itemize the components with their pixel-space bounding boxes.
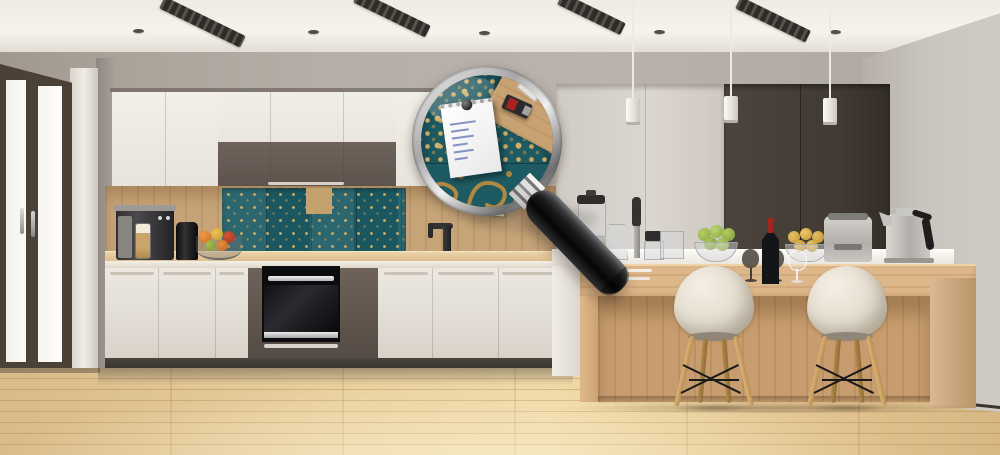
pendant-light	[724, 96, 738, 123]
black-canister	[176, 222, 198, 260]
pendant-cord	[632, 0, 634, 100]
oven-drawer-handle	[264, 344, 338, 348]
base-cabinet-white-left	[105, 268, 248, 360]
bar-right-leg	[930, 278, 976, 408]
window-handle	[20, 208, 24, 234]
faucet-spout-tip	[428, 223, 433, 238]
pendant-light	[626, 98, 640, 125]
oven-handle	[268, 276, 334, 281]
latte-glass	[136, 224, 150, 258]
note-scribble	[454, 149, 474, 154]
door-handle	[163, 272, 211, 275]
usb-label	[506, 97, 519, 111]
window-pane	[38, 86, 62, 362]
toaster-panel	[834, 244, 862, 250]
note-scribble	[451, 128, 469, 132]
machine-light	[158, 216, 162, 220]
yellow-fruit	[800, 228, 812, 240]
oven-door-glass	[264, 285, 338, 332]
door-handle	[110, 272, 154, 275]
base-cabinet-white-right	[378, 268, 560, 360]
cabinet-door-seam	[498, 268, 499, 360]
yellow-fruit	[211, 228, 223, 240]
note-scribble	[453, 143, 468, 147]
machine-light	[166, 216, 170, 220]
recessed-light-icon	[133, 29, 144, 33]
floor-shadow-under-cabinets	[98, 368, 573, 385]
chair-strut	[822, 379, 872, 381]
green-fruit	[205, 240, 216, 251]
upper-cabinet-two-tone	[218, 92, 396, 189]
bar-left-stile	[580, 296, 598, 402]
cabinet-door-seam	[343, 92, 344, 189]
pendant-light	[823, 98, 837, 125]
stick-blender-handle	[632, 197, 641, 227]
beige-tile-patch	[306, 188, 332, 214]
green-apple	[710, 225, 723, 238]
cabinet-door-seam	[432, 268, 433, 360]
pendant-cord	[829, 0, 831, 100]
water-tank	[118, 216, 132, 258]
chair-leg	[807, 335, 828, 406]
chair-leg	[733, 335, 754, 406]
dining-chair	[672, 266, 756, 416]
chair-shell	[807, 266, 887, 338]
ceiling	[0, 0, 1000, 58]
glass-container	[660, 231, 684, 259]
cabinet-door-seam	[165, 92, 166, 189]
glass-stem	[796, 269, 798, 280]
recessed-light-icon	[654, 30, 665, 34]
recessed-light-icon	[830, 30, 841, 34]
island-floor-shadow	[565, 402, 985, 414]
recessed-light-icon	[479, 31, 490, 35]
cabinet-door-seam	[215, 268, 216, 360]
glass-foot	[791, 280, 803, 283]
chair-shell	[674, 266, 754, 338]
chair-leg	[674, 335, 695, 406]
door-handle	[219, 272, 244, 275]
built-in-oven	[262, 266, 340, 342]
stick-blender-shaft	[634, 226, 640, 258]
chair-floor-shadow	[672, 404, 756, 412]
oven-trim	[264, 332, 338, 338]
machine-top	[114, 205, 176, 211]
blender-lid	[577, 195, 605, 204]
door-handle	[438, 272, 494, 275]
upper-cabinet-white-left	[112, 92, 218, 191]
window-handle	[31, 211, 35, 237]
door-handle	[384, 272, 428, 275]
chopper-motor	[645, 231, 661, 241]
chair-seat-shadow	[688, 332, 740, 341]
recessed-handle	[268, 182, 344, 185]
kettle-base	[884, 258, 934, 263]
chair-strut	[689, 379, 739, 381]
cabinet-door-seam	[158, 268, 159, 360]
recessed-light-icon	[308, 30, 319, 34]
pendant-cord	[730, 0, 732, 98]
window-jamb	[70, 68, 98, 374]
kitchen-photo	[0, 0, 1000, 455]
blender-cap	[586, 190, 596, 196]
clear-wine-glass	[788, 250, 805, 283]
dining-chair	[805, 266, 889, 416]
chair-floor-shadow	[805, 404, 889, 412]
chair-leg	[866, 335, 887, 406]
note-scribble	[455, 157, 468, 161]
wine-capsule	[768, 218, 773, 233]
toaster-slots	[828, 213, 868, 220]
chair-seat-shadow	[821, 332, 873, 341]
note-scribble	[452, 135, 474, 140]
cabinet-door-seam	[270, 92, 271, 189]
floor-shadow-left-wall	[0, 368, 100, 373]
orange-fruit	[217, 240, 228, 251]
upper-cabinet-white-row	[218, 92, 396, 142]
french-window	[0, 64, 72, 376]
toaster	[824, 216, 872, 262]
door-handle	[502, 272, 554, 275]
